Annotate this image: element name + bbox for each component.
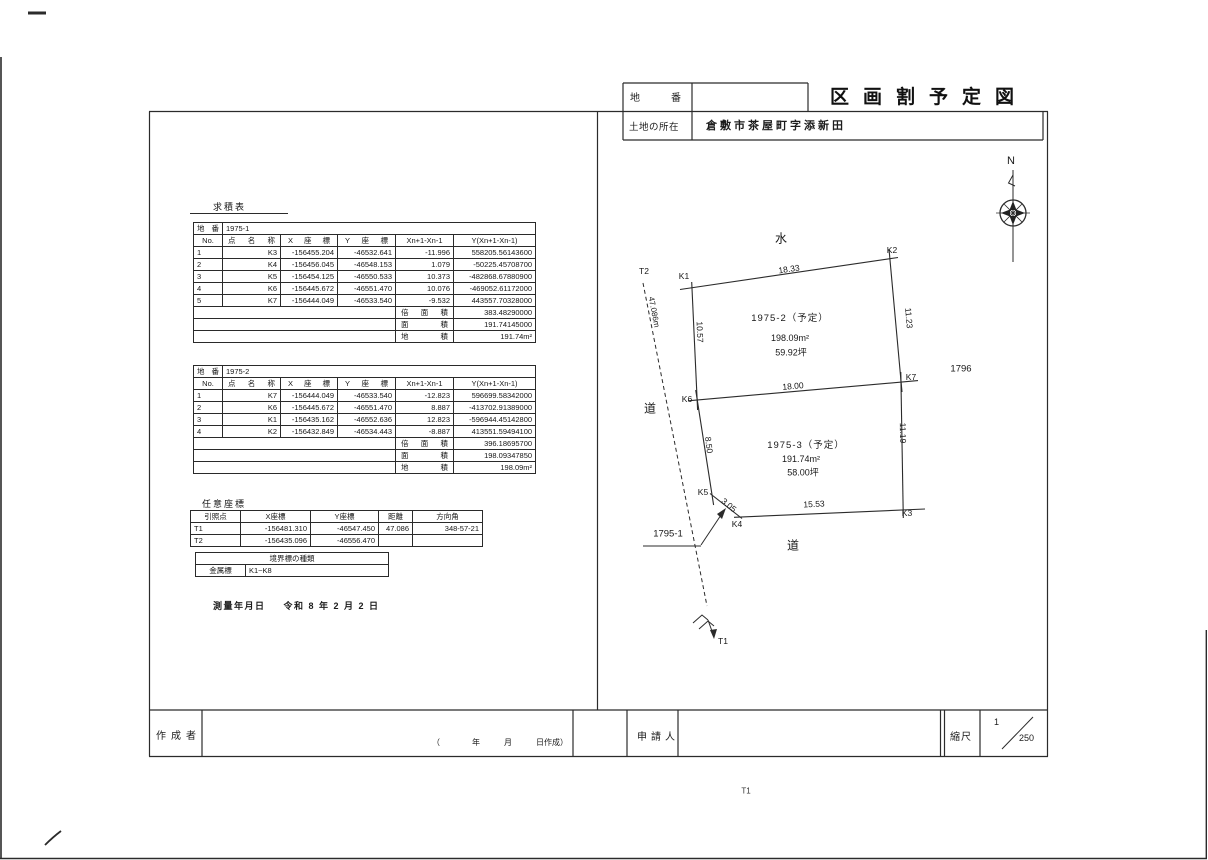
scale-label: 縮尺 xyxy=(950,728,972,743)
neighbor-lot-bottom-left: 1795-1 xyxy=(653,529,683,540)
survey-date-value: 令和 8 年 2 月 2 日 xyxy=(284,601,380,611)
page-footer-mark: T1 xyxy=(741,787,750,796)
table-row: 5K7 -156444.049-46533.540 -9.532443557.7… xyxy=(194,295,536,307)
lot-1975-2-name: 1975-2（予定） xyxy=(751,310,829,324)
lot-1975-2-area: 198.09m² xyxy=(771,333,809,343)
sum-row: 倍面積 396.18695700 xyxy=(194,438,536,450)
table-row: 2K4 -156456.045-46548.153 1.079-50225.45… xyxy=(194,259,536,271)
sheet-title: 区画割予定図 xyxy=(830,82,1028,109)
creator-label: 作成者 xyxy=(156,727,196,742)
dim-k2-k7: 11.23 xyxy=(903,307,915,328)
section-label-kyusekihyo: 求積表 xyxy=(213,200,246,213)
point-label-k7: K7 xyxy=(906,372,916,382)
section-label-arbitrary-coords: 任意座標 xyxy=(202,497,246,510)
sum-row: 地積 198.09m² xyxy=(194,462,536,474)
point-label-k5: K5 xyxy=(698,487,708,497)
parcel-number: 1975-2 xyxy=(223,366,536,378)
line-break-symbol xyxy=(693,615,708,623)
table-row: 4K2 -156432.849-46534.443 -8.887413551.5… xyxy=(194,426,536,438)
table-header-row: 引照点 X座標 Y座標 距離 方向角 xyxy=(191,511,483,523)
arrowhead-1795-1 xyxy=(717,508,726,519)
location-value: 倉敷市茶屋町字添新田 xyxy=(706,117,846,133)
sum-row: 地積 191.74m² xyxy=(194,331,536,343)
point-label-k6: K6 xyxy=(682,394,692,404)
survey-date-label: 測量年月日 xyxy=(213,601,266,611)
lot-1975-3-name: 1975-3（予定） xyxy=(767,437,845,451)
table-row: T1 -156481.310 -46547.450 47.086 348-57-… xyxy=(191,523,483,535)
table-header-row: No. 点名称 X座標 Y座標 Xn+1-Xn-1 Y(Xn+1-Xn-1) xyxy=(194,378,536,390)
boundary-marker-table: 境界標の種類 金属標 K1~K8 xyxy=(195,552,389,577)
dim-k6-k7: 18.00 xyxy=(782,380,804,392)
point-label-t1: T1 xyxy=(718,636,728,646)
road-bottom-label: 道 xyxy=(787,537,799,554)
sum-row: 面積 198.09347850 xyxy=(194,450,536,462)
dim-k7-k3: 11.19 xyxy=(898,423,908,444)
scale-denominator: 250 xyxy=(1019,733,1034,743)
point-label-k3: K3 xyxy=(902,508,912,518)
north-label: N xyxy=(1007,155,1015,167)
water-label: 水 xyxy=(775,230,787,247)
table-row: 金属標 K1~K8 xyxy=(196,565,389,577)
neighbor-lot-right: 1796 xyxy=(950,364,971,375)
scanned-cadastral-plan-sheet: 地 番 区画割予定図 土地の所在 倉敷市茶屋町字添新田 求積表 地番 1975-… xyxy=(0,0,1208,860)
scale-numerator: 1 xyxy=(994,717,999,727)
table-row: 1K3 -156455.204-46532.641 -11.996558205.… xyxy=(194,247,536,259)
table-row: 3K5 -156454.125-46550.533 10.373-482868.… xyxy=(194,271,536,283)
point-label-k1: K1 xyxy=(679,271,689,281)
area-table-1975-1: 地番 1975-1 No. 点名称 X座標 Y座標 Xn+1-Xn-1 Y(Xn… xyxy=(193,222,536,343)
point-label-t2: T2 xyxy=(639,266,649,276)
area-table-1975-2: 地番 1975-2 No. 点名称 X座標 Y座標 Xn+1-Xn-1 Y(Xn… xyxy=(193,365,536,474)
creator-date-note: （ 年 月 日作成） xyxy=(425,737,568,748)
dim-k6-k5: 8.50 xyxy=(703,436,715,454)
location-label: 土地の所在 xyxy=(629,119,679,133)
table-row: 4K6 -156445.672-46551.470 10.076-469052.… xyxy=(194,283,536,295)
applicant-label: 申請人 xyxy=(637,728,675,743)
table-row: 2K6 -156445.672-46551.470 8.887-413702.9… xyxy=(194,402,536,414)
lot-1975-3-area: 191.74m² xyxy=(782,454,820,464)
sum-row: 倍面積 383.48290000 xyxy=(194,307,536,319)
parcel-number: 1975-1 xyxy=(223,223,536,235)
north-compass-icon xyxy=(996,170,1030,262)
table-header-row: No. 点名称 X座標 Y座標 Xn+1-Xn-1 Y(Xn+1-Xn-1) xyxy=(194,235,536,247)
lot-1975-3-tsubo: 58.00坪 xyxy=(787,466,819,479)
line-break-symbol xyxy=(699,621,714,629)
neighbor-lot-leader xyxy=(643,508,726,546)
dim-k1-k6: 10.57 xyxy=(695,321,706,343)
parcel-label: 地番 xyxy=(194,366,223,378)
dim-k4-k3: 15.53 xyxy=(803,498,825,509)
survey-date-line: 測量年月日 令和 8 年 2 月 2 日 xyxy=(213,599,380,612)
lot-number-label: 地 番 xyxy=(630,89,682,104)
parcel-label: 地番 xyxy=(194,223,223,235)
point-label-k4: K4 xyxy=(732,519,742,529)
table-row: 3K1 -156435.162-46552.636 12.823-596944.… xyxy=(194,414,536,426)
lot-1975-2-tsubo: 59.92坪 xyxy=(775,346,807,359)
boundary-marker-title: 境界標の種類 xyxy=(196,553,389,565)
table-row: 1K7 -156444.049-46533.540 -12.823596699.… xyxy=(194,390,536,402)
table-row: T2 -156435.096 -46556.470 xyxy=(191,535,483,547)
sum-row: 面積 191.74145000 xyxy=(194,319,536,331)
road-left-label: 道 xyxy=(644,400,656,417)
point-label-k2: K2 xyxy=(887,245,897,255)
reference-line-t2-t1 xyxy=(643,283,717,639)
arrowhead-t1 xyxy=(710,629,717,639)
arbitrary-coords-table: 引照点 X座標 Y座標 距離 方向角 T1 -156481.310 -46547… xyxy=(190,510,483,547)
